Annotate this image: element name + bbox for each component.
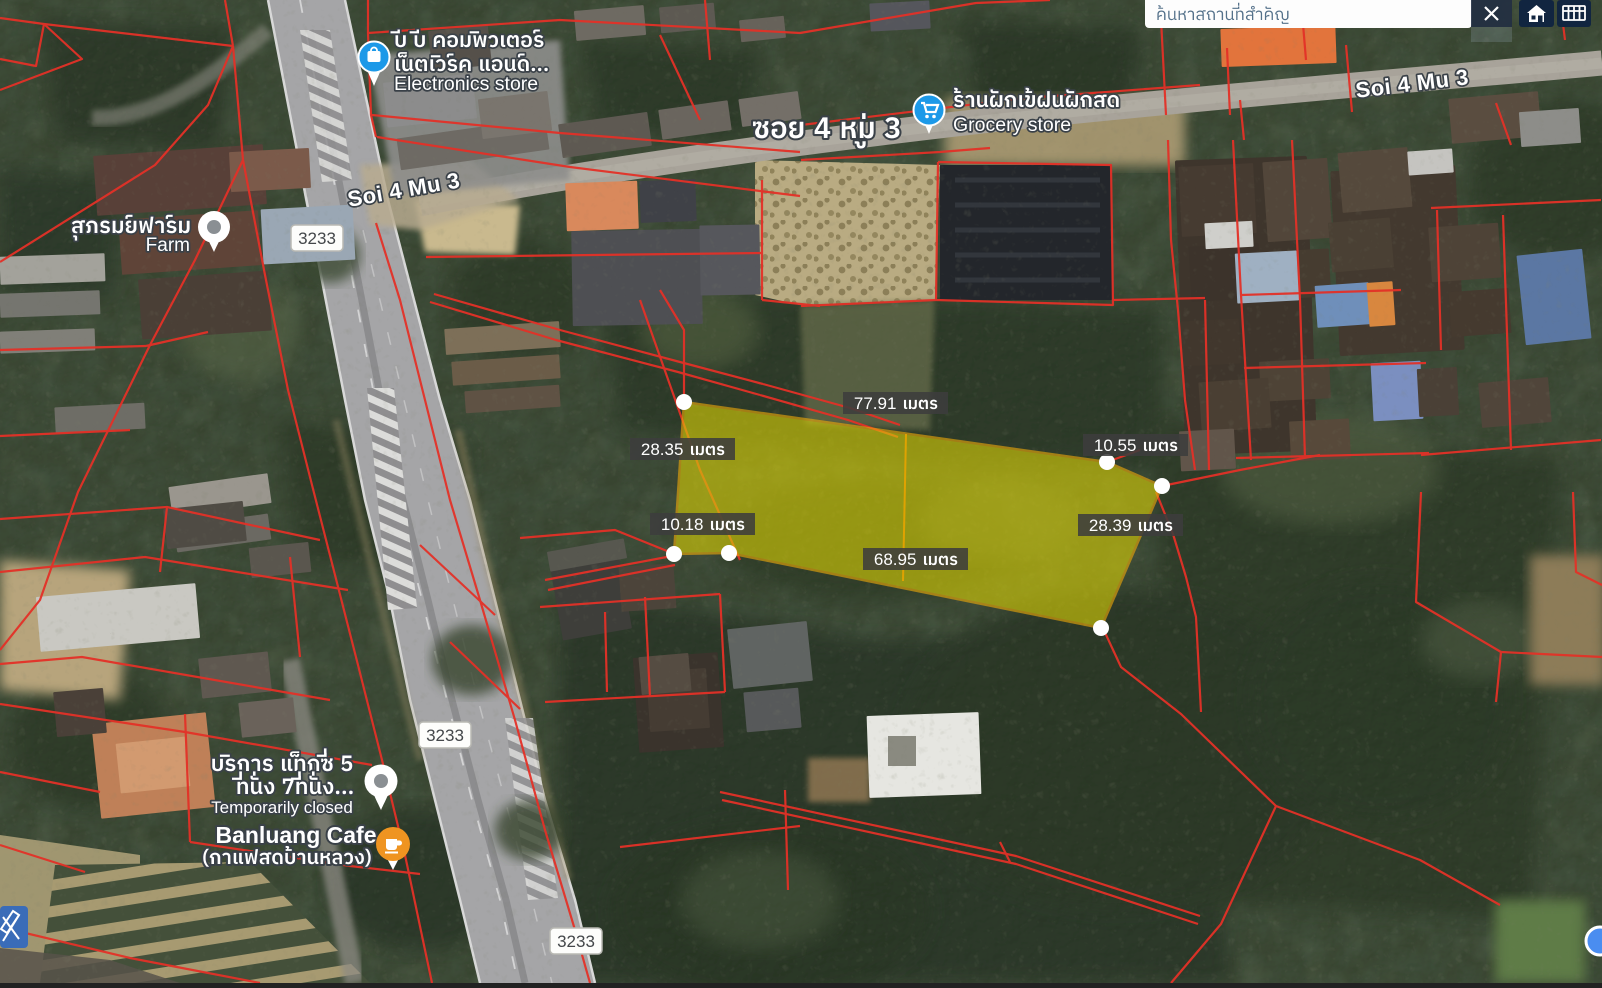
svg-text:10.55: 10.55 — [1094, 436, 1137, 455]
svg-text:28.39: 28.39 — [1089, 516, 1132, 535]
svg-text:3233: 3233 — [557, 932, 595, 951]
svg-text:3233: 3233 — [426, 726, 464, 745]
svg-text:68.95: 68.95 — [874, 550, 917, 569]
svg-text:77.91: 77.91 — [854, 394, 897, 413]
svg-text:3233: 3233 — [298, 229, 336, 248]
svg-text:Farm: Farm — [146, 235, 190, 256]
svg-text:Temporarily closed: Temporarily closed — [211, 798, 353, 817]
svg-text:Grocery store: Grocery store — [953, 114, 1071, 136]
svg-text:28.35: 28.35 — [641, 440, 684, 459]
svg-text:10.18: 10.18 — [661, 515, 704, 534]
svg-text:Electronics store: Electronics store — [394, 73, 538, 95]
svg-text:Banluang Cafe: Banluang Cafe — [215, 822, 376, 848]
